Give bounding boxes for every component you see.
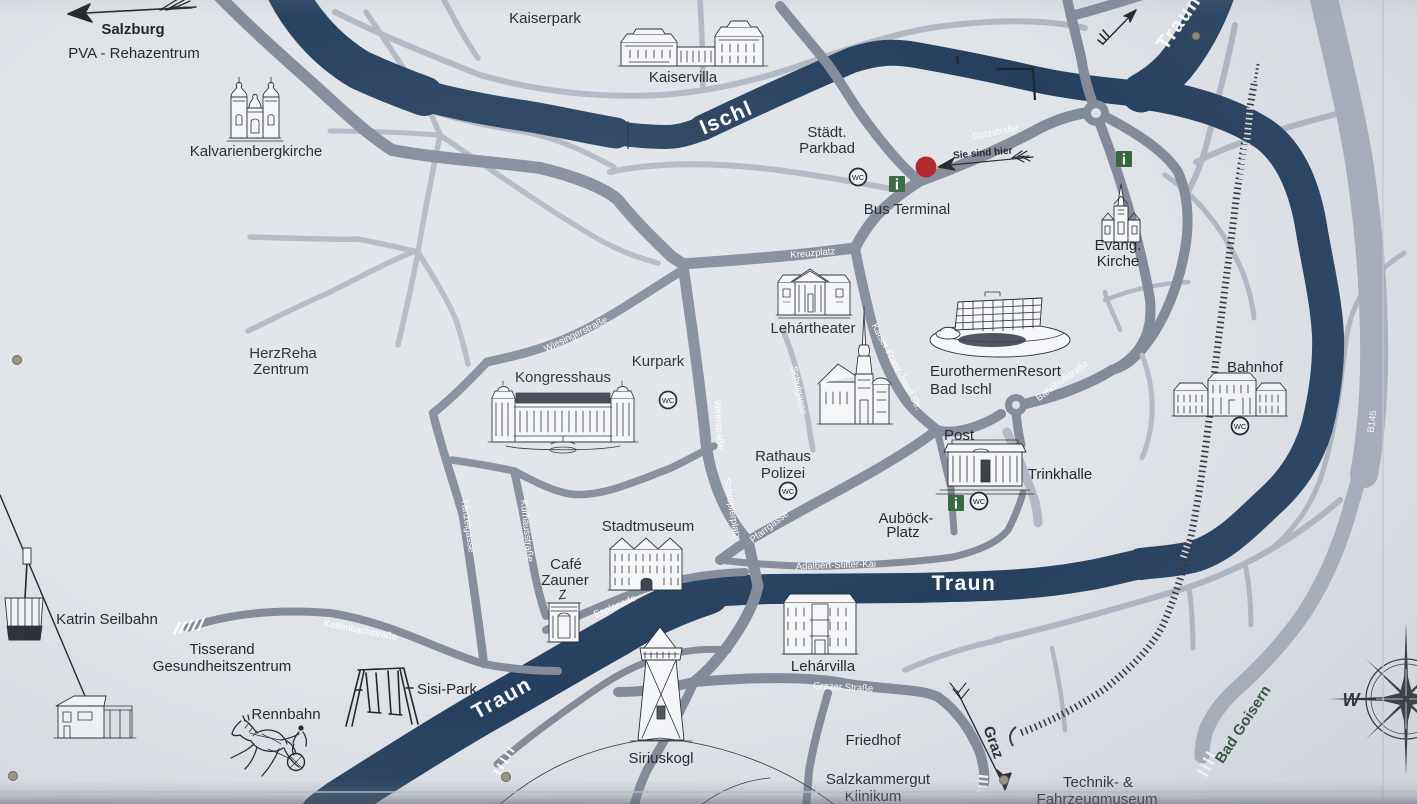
- svg-text:Platz: Platz: [886, 524, 919, 541]
- svg-text:Rathaus: Rathaus: [755, 448, 811, 465]
- svg-text:Bad Ischl: Bad Ischl: [930, 381, 992, 398]
- svg-text:i: i: [895, 177, 899, 194]
- svg-text:Klinikum: Klinikum: [845, 788, 902, 804]
- svg-text:WC: WC: [782, 487, 795, 496]
- svg-text:Sisi-Park: Sisi-Park: [417, 681, 478, 698]
- svg-text:i: i: [1122, 152, 1126, 169]
- svg-text:Rennbahn: Rennbahn: [251, 706, 320, 723]
- svg-text:Parkbad: Parkbad: [799, 140, 855, 157]
- svg-text:Friedhof: Friedhof: [845, 732, 901, 749]
- svg-text:WC: WC: [662, 396, 675, 405]
- svg-text:Stadtmuseum: Stadtmuseum: [602, 518, 695, 535]
- svg-text:Technik- &: Technik- &: [1063, 774, 1133, 791]
- svg-text:WC: WC: [973, 497, 986, 506]
- svg-text:Katrin Seilbahn: Katrin Seilbahn: [56, 611, 158, 628]
- svg-text:Zauner: Zauner: [541, 572, 589, 589]
- svg-text:Tisserand: Tisserand: [189, 641, 254, 658]
- svg-text:Salzburg: Salzburg: [101, 21, 164, 38]
- svg-text:Kaiserpark: Kaiserpark: [509, 10, 581, 27]
- svg-text:Traun: Traun: [932, 572, 997, 595]
- svg-text:Siriuskogl: Siriuskogl: [628, 750, 693, 767]
- svg-text:Lehárvilla: Lehárvilla: [791, 658, 856, 675]
- svg-text:Gesundheitszentrum: Gesundheitszentrum: [153, 658, 291, 675]
- svg-text:Kongresshaus: Kongresshaus: [515, 369, 611, 386]
- svg-text:HerzReha: HerzReha: [249, 345, 317, 362]
- svg-text:PVA - Rehazentrum: PVA - Rehazentrum: [68, 45, 199, 62]
- svg-text:Salzkammergut: Salzkammergut: [826, 771, 931, 788]
- svg-text:WC: WC: [852, 173, 865, 182]
- svg-text:Städt.: Städt.: [807, 124, 846, 141]
- svg-text:Café: Café: [550, 556, 582, 573]
- svg-text:W: W: [1343, 690, 1362, 710]
- svg-text:Evang.: Evang.: [1095, 237, 1142, 254]
- svg-text:Polizei: Polizei: [761, 465, 805, 482]
- svg-text:Trinkhalle: Trinkhalle: [1028, 466, 1092, 483]
- svg-text:Kalvarienbergkirche: Kalvarienbergkirche: [190, 143, 323, 160]
- svg-text:i: i: [954, 496, 958, 513]
- svg-text:Bus Terminal: Bus Terminal: [864, 201, 950, 218]
- svg-text:Lehártheater: Lehártheater: [770, 320, 855, 337]
- svg-text:EurothermenResort: EurothermenResort: [930, 363, 1062, 380]
- svg-text:Bahnhof: Bahnhof: [1227, 359, 1284, 376]
- svg-text:Kirche: Kirche: [1097, 253, 1140, 270]
- svg-text:Kaiservilla: Kaiservilla: [649, 69, 718, 86]
- svg-text:Kurpark: Kurpark: [632, 353, 685, 370]
- svg-text:WC: WC: [1234, 422, 1247, 431]
- svg-text:Zentrum: Zentrum: [253, 361, 309, 378]
- svg-text:Post: Post: [944, 427, 975, 444]
